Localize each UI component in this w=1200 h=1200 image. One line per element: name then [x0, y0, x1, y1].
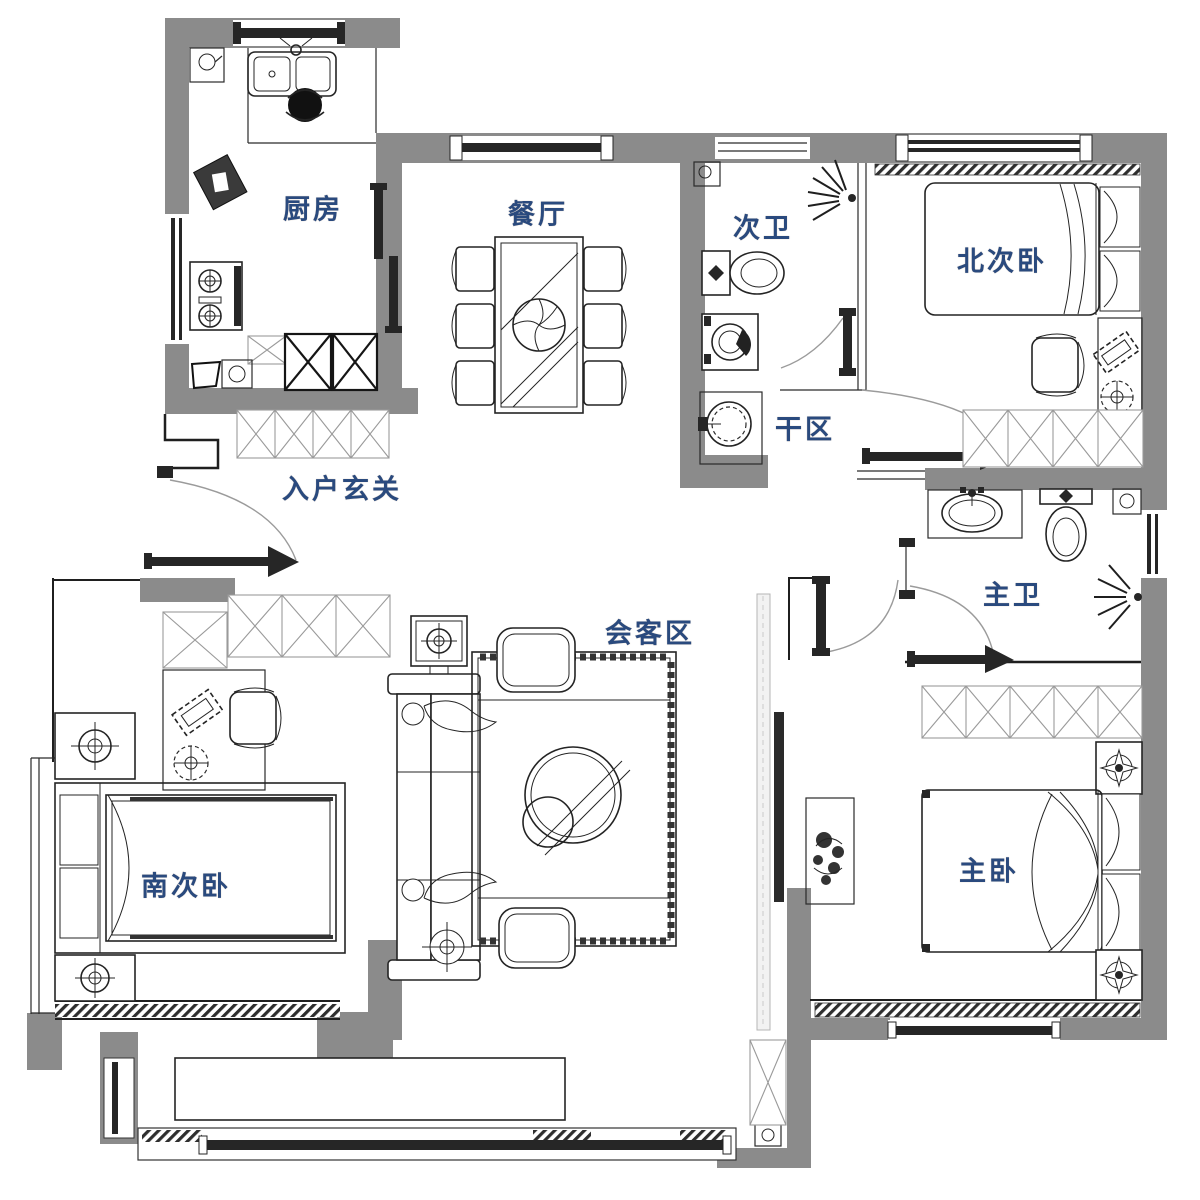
dining-table [495, 237, 583, 413]
kitchen-stove [190, 262, 242, 330]
dining-furniture [452, 237, 626, 413]
entry-door-arc [170, 480, 296, 560]
nightstand-top [55, 713, 135, 779]
light-rays-icon [808, 160, 856, 220]
desk-chair [1032, 334, 1084, 396]
wardrobe [163, 595, 390, 668]
balcony-cabinet [175, 1058, 565, 1120]
pouf-bottom [499, 908, 575, 968]
room-label-south-bedroom: 南次卧 [141, 865, 231, 904]
room-label-north-bedroom: 北次卧 [957, 240, 1047, 279]
coffee-table [523, 747, 630, 855]
toilet [1040, 489, 1092, 561]
toilet [702, 251, 784, 295]
wardrobe [963, 410, 1143, 467]
south-bedroom-furniture [55, 595, 390, 1001]
master-bedroom-furniture [774, 686, 1142, 1000]
vanity-sink [928, 487, 1022, 538]
nightstand-top [1096, 742, 1142, 794]
dry-area-basin [698, 392, 762, 464]
living-furniture [388, 616, 676, 980]
nightstand-bottom [1096, 950, 1142, 1000]
kitchen-base-cabinets [192, 334, 377, 390]
sofa [388, 674, 496, 980]
tv-panel [774, 712, 784, 902]
room-label-kitchen: 厨房 [283, 188, 343, 227]
entry-cabinets [237, 410, 389, 458]
desk-chair [230, 688, 281, 748]
nightstand-bottom [55, 955, 135, 1001]
side-table [1093, 318, 1142, 418]
cutting-board [194, 155, 247, 210]
washing-machine [702, 314, 758, 370]
room-label-living-area: 会客区 [605, 612, 695, 651]
pouf-top [497, 628, 575, 692]
rug [472, 652, 676, 946]
tv-unit [411, 616, 467, 676]
room-label-dry-area: 干区 [775, 408, 835, 447]
room-label-dining: 餐厅 [508, 193, 568, 232]
room-label-entry-foyer: 入户玄关 [282, 468, 402, 507]
north-bedroom-furniture [925, 183, 1143, 467]
room-label-secondary-bath: 次卫 [733, 207, 793, 246]
bed [922, 790, 1140, 952]
shower-rays-icon [1094, 565, 1142, 629]
wardrobe [922, 686, 1142, 738]
room-label-master-bedroom: 主卧 [959, 850, 1019, 889]
plant [806, 798, 854, 904]
floor-plan: 厨房 餐厅 次卫 北次卧 干区 入户玄关 主卫 会客区 南次卧 主卧 [0, 0, 1200, 1200]
room-label-master-bath: 主卫 [983, 574, 1043, 613]
